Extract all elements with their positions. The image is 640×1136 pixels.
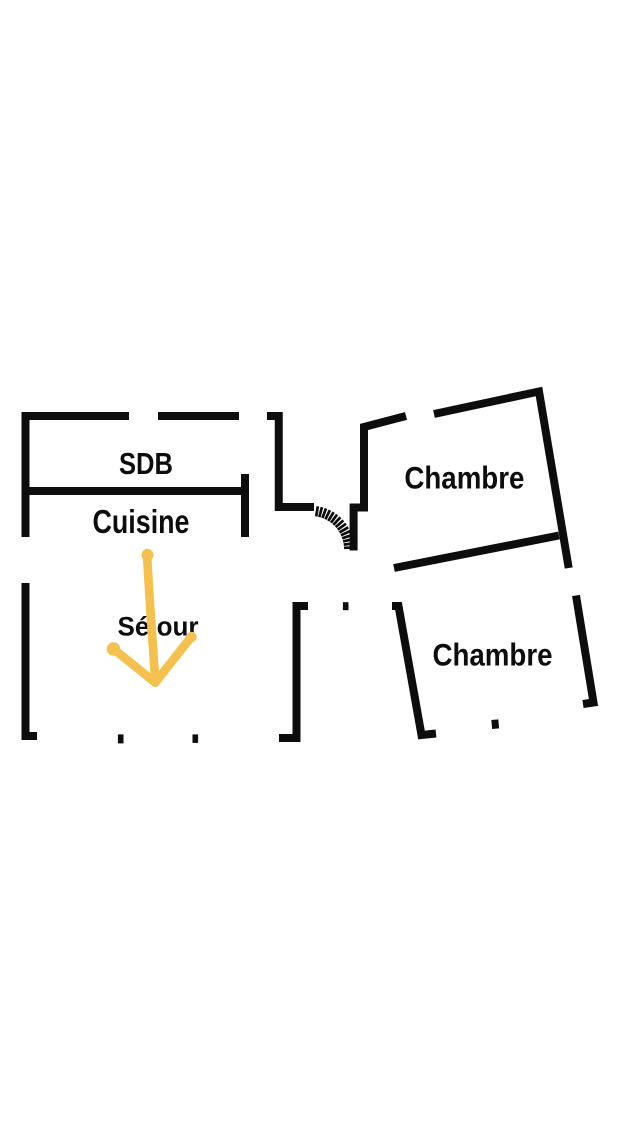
svg-text:Cuisine: Cuisine [93, 504, 190, 541]
svg-text:Chambre: Chambre [404, 460, 524, 496]
svg-text:Chambre: Chambre [433, 637, 553, 673]
svg-text:SDB: SDB [119, 447, 173, 481]
